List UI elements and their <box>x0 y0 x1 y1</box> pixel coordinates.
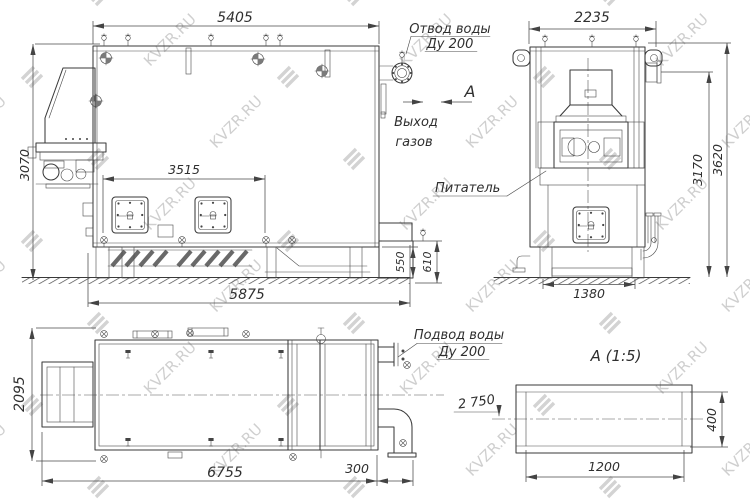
drawing-sheet: KVZR.RUKVZR.RUKVZR.RUKVZR.RUKVZR.RUKVZR.… <box>0 0 750 500</box>
side-top-valves <box>543 35 639 47</box>
feeder-front <box>538 70 645 185</box>
watermark-text: KVZR.RU <box>462 420 522 480</box>
watermark-text: KVZR.RU <box>462 92 522 152</box>
dim-front-width: 5405 <box>217 10 253 26</box>
water-inlet-stub <box>378 343 410 368</box>
watermark-text: KVZR.RU <box>718 420 750 480</box>
label-water-outlet: Отвод воды <box>409 22 490 37</box>
label-gas-exit-1: Выход <box>394 115 438 130</box>
access-door <box>112 197 148 233</box>
dim-side-base: 1380 <box>573 286 605 301</box>
dim-front-height: 3070 <box>17 149 32 181</box>
watermark-logo-icon <box>22 231 42 251</box>
plan-feeder-box <box>42 362 93 427</box>
dim-section-height: 400 <box>704 408 719 432</box>
grate-bars <box>112 251 247 266</box>
dim-doors-span: 3515 <box>168 162 200 177</box>
label-water-inlet: Подвод воды <box>414 328 504 343</box>
gas-duct-elbow <box>378 409 416 457</box>
watermark-logo-icon <box>600 0 620 5</box>
watermark-text: KVZR.RU <box>206 92 266 152</box>
watermark-text: KVZR.RU <box>718 256 750 316</box>
watermark-logo-icon <box>88 477 108 497</box>
watermark-logo-icon <box>88 0 108 5</box>
dim-side-width: 2235 <box>574 10 610 26</box>
watermark-logo-icon <box>344 0 364 5</box>
label-water-outlet-dn: Ду 200 <box>426 37 474 52</box>
side-access-door <box>573 207 609 243</box>
boiler-body <box>93 46 379 247</box>
watermark-text: KVZR.RU <box>0 420 10 480</box>
watermark-logo-icon <box>534 67 554 87</box>
front-dimensions: 5405 3070 3515 5875 550 610 <box>17 10 442 307</box>
watermark-text: KVZR.RU <box>718 92 750 152</box>
access-door <box>195 197 231 233</box>
watermark-logo-icon <box>534 395 554 415</box>
center-of-mass-icon <box>315 64 329 78</box>
label-feeder: Питатель <box>435 181 500 196</box>
dim-base-height: 550 <box>394 252 407 273</box>
safety-valves <box>102 34 283 46</box>
label-water-inlet-dn: Ду 200 <box>438 345 486 360</box>
dim-outlet-height: 610 <box>421 252 434 273</box>
dim-base-length: 5875 <box>229 287 265 303</box>
center-of-mass-icon <box>251 52 265 66</box>
watermark-logo-icon <box>600 477 620 497</box>
watermark-logo-icon <box>88 313 108 333</box>
watermark-text: KVZR.RU <box>0 256 10 316</box>
watermark-text: KVZR.RU <box>140 338 200 398</box>
dim-side-outlet-height: 3170 <box>690 154 705 186</box>
ground-line <box>22 278 410 285</box>
dim-section-width: 1200 <box>588 459 620 474</box>
label-section-mark: А <box>464 82 476 101</box>
ash-pit <box>277 248 367 266</box>
watermark-logo-icon <box>22 67 42 87</box>
dim-side-total-height: 3620 <box>710 144 725 176</box>
label-distance-note: 2 750 <box>457 393 496 413</box>
side-dimensions: 2235 3170 3620 1380 <box>529 10 731 301</box>
fuel-feeder <box>28 68 106 236</box>
junction-box <box>158 225 173 237</box>
watermark-logo-icon <box>534 231 554 251</box>
watermark-logo-icon <box>278 67 298 87</box>
center-of-mass-icon <box>99 51 113 65</box>
dim-plan-length: 6755 <box>207 465 243 481</box>
watermark-text: KVZR.RU <box>0 92 10 152</box>
center-of-mass-icon <box>89 94 103 108</box>
section-dimensions: 1200 400 <box>526 392 728 482</box>
dim-plan-depth: 2095 <box>12 376 28 412</box>
section-view-title: А (1:5) <box>590 347 642 365</box>
watermark-text: KVZR.RU <box>462 256 522 316</box>
downcomer-panel <box>381 84 386 114</box>
watermark-logo-icon <box>344 477 364 497</box>
watermark-logo-icon <box>344 149 364 169</box>
label-gas-exit-2: газов <box>395 135 432 150</box>
watermark-logo-icon <box>600 313 620 333</box>
leader-line <box>398 344 417 358</box>
side-lower <box>513 185 661 278</box>
tube-header <box>186 48 191 74</box>
ground-line <box>494 278 690 285</box>
dim-pipe-extension: 300 <box>345 461 369 476</box>
boiler-drawing: KVZR.RUKVZR.RUKVZR.RUKVZR.RUKVZR.RUKVZR.… <box>0 0 750 500</box>
watermark-logo-icon <box>600 149 620 169</box>
plan-bottom-fittings <box>101 450 321 462</box>
watermark-text: KVZR.RU <box>652 338 712 398</box>
watermark-logo-icon <box>344 313 364 333</box>
drain-valves <box>101 237 296 247</box>
lifting-lugs <box>513 50 662 66</box>
